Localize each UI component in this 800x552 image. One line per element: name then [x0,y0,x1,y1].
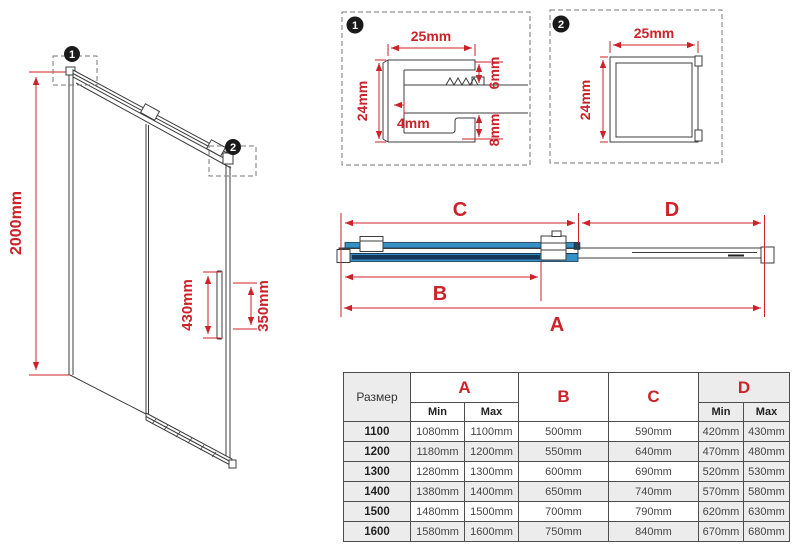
table-header-c: C [609,373,699,422]
a-min-cell: 1180mm [411,442,465,462]
top-bracket [360,237,383,252]
table-header-a: A [411,373,519,403]
a-max-cell: 1200mm [465,442,519,462]
d-max-cell: 480mm [744,442,790,462]
detail2-width-label: 25mm [634,25,674,41]
b-cell: 750mm [519,522,609,542]
plan-view-diagram: C D B A [337,199,774,336]
plan-dim-b-label: B [433,283,447,305]
plan-dim-a-label: A [550,314,564,336]
svg-text:2: 2 [558,19,564,31]
d-max-cell: 630mm [744,502,790,522]
d-min-cell: 470mm [699,442,744,462]
d-min-cell: 670mm [699,522,744,542]
table-header-d-max: Max [744,403,790,422]
size-cell: 1400 [344,482,411,502]
detail1-bottom-gap-label: 8mm [486,114,502,147]
b-cell: 700mm [519,502,609,522]
door-perspective-diagram: 2000mm 430mm [8,46,272,468]
a-max-cell: 1100mm [465,422,519,442]
plan-dim-d-label: D [665,199,679,221]
c-cell: 640mm [609,442,699,462]
d-min-cell: 620mm [699,502,744,522]
d-max-cell: 580mm [744,482,790,502]
detail1-height-label: 24mm [354,81,370,121]
detail1-top-gap-label: 6mm [486,57,502,90]
c-cell: 840mm [609,522,699,542]
size-cell: 1500 [344,502,411,522]
profile-detail-2: 2 25mm 24mm [550,10,722,163]
b-cell: 600mm [519,462,609,482]
table-row: 1200 1180mm 1200mm 550mm 640mm 470mm 480… [344,442,790,462]
a-max-cell: 1400mm [465,482,519,502]
a-min-cell: 1280mm [411,462,465,482]
callout-2-badge: 2 [225,139,241,155]
d-min-cell: 570mm [699,482,744,502]
door-handle [217,271,222,339]
svg-text:1: 1 [69,49,75,61]
d-min-cell: 520mm [699,462,744,482]
roller-bracket [541,231,566,260]
c-cell: 690mm [609,462,699,482]
table-header-a-min: Min [411,403,465,422]
square-profile-drawing [610,56,702,142]
a-max-cell: 1600mm [465,522,519,542]
size-cell: 1600 [344,522,411,542]
table-row: 1600 1580mm 1600mm 750mm 840mm 670mm 680… [344,522,790,542]
d-min-cell: 420mm [699,422,744,442]
c-cell: 740mm [609,482,699,502]
callout-1-badge: 1 [64,46,80,62]
profile-detail-1: 1 25mm 24mm 6mm 8mm 4mm [342,12,530,165]
table-header-d-min: Min [699,403,744,422]
c-cell: 590mm [609,422,699,442]
svg-text:2: 2 [230,142,236,154]
table-header-size: Размер [344,373,411,422]
door-frame [66,67,236,468]
b-cell: 650mm [519,482,609,502]
b-cell: 550mm [519,442,609,462]
detail1-width-label: 25mm [411,28,451,44]
detail-2-badge: 2 [553,16,570,33]
size-cell: 1100 [344,422,411,442]
b-cell: 500mm [519,422,609,442]
a-max-cell: 1300mm [465,462,519,482]
table-header-a-max: Max [465,403,519,422]
detail-1-badge: 1 [347,17,364,34]
a-max-cell: 1500mm [465,502,519,522]
handle-inner-label: 350mm [255,280,272,332]
track-assembly [337,231,774,263]
detail1-glass-label: 4mm [397,115,430,131]
size-table: Размер A B C D Min Max Min Max 1100 1080… [343,372,790,542]
d-max-cell: 530mm [744,462,790,482]
table-row: 1100 1080mm 1100mm 500mm 590mm 420mm 430… [344,422,790,442]
size-cell: 1300 [344,462,411,482]
table-row: 1400 1380mm 1400mm 650mm 740mm 570mm 580… [344,482,790,502]
detail2-height-label: 24mm [577,80,593,120]
table-row: 1500 1480mm 1500mm 700mm 790mm 620mm 630… [344,502,790,522]
handle-height-label: 430mm [179,279,196,331]
spec-sheet: 2000mm 430mm [0,0,800,552]
table-header-b: B [519,373,609,422]
svg-text:1: 1 [352,20,358,32]
d-max-cell: 680mm [744,522,790,542]
height-dimension-label: 2000mm [8,191,25,255]
a-min-cell: 1480mm [411,502,465,522]
a-min-cell: 1580mm [411,522,465,542]
size-cell: 1200 [344,442,411,462]
a-min-cell: 1080mm [411,422,465,442]
table-header-d: D [699,373,790,403]
plan-dim-c-label: C [453,199,467,221]
a-min-cell: 1380mm [411,482,465,502]
c-cell: 790mm [609,502,699,522]
d-max-cell: 430mm [744,422,790,442]
table-row: 1300 1280mm 1300mm 600mm 690mm 520mm 530… [344,462,790,482]
